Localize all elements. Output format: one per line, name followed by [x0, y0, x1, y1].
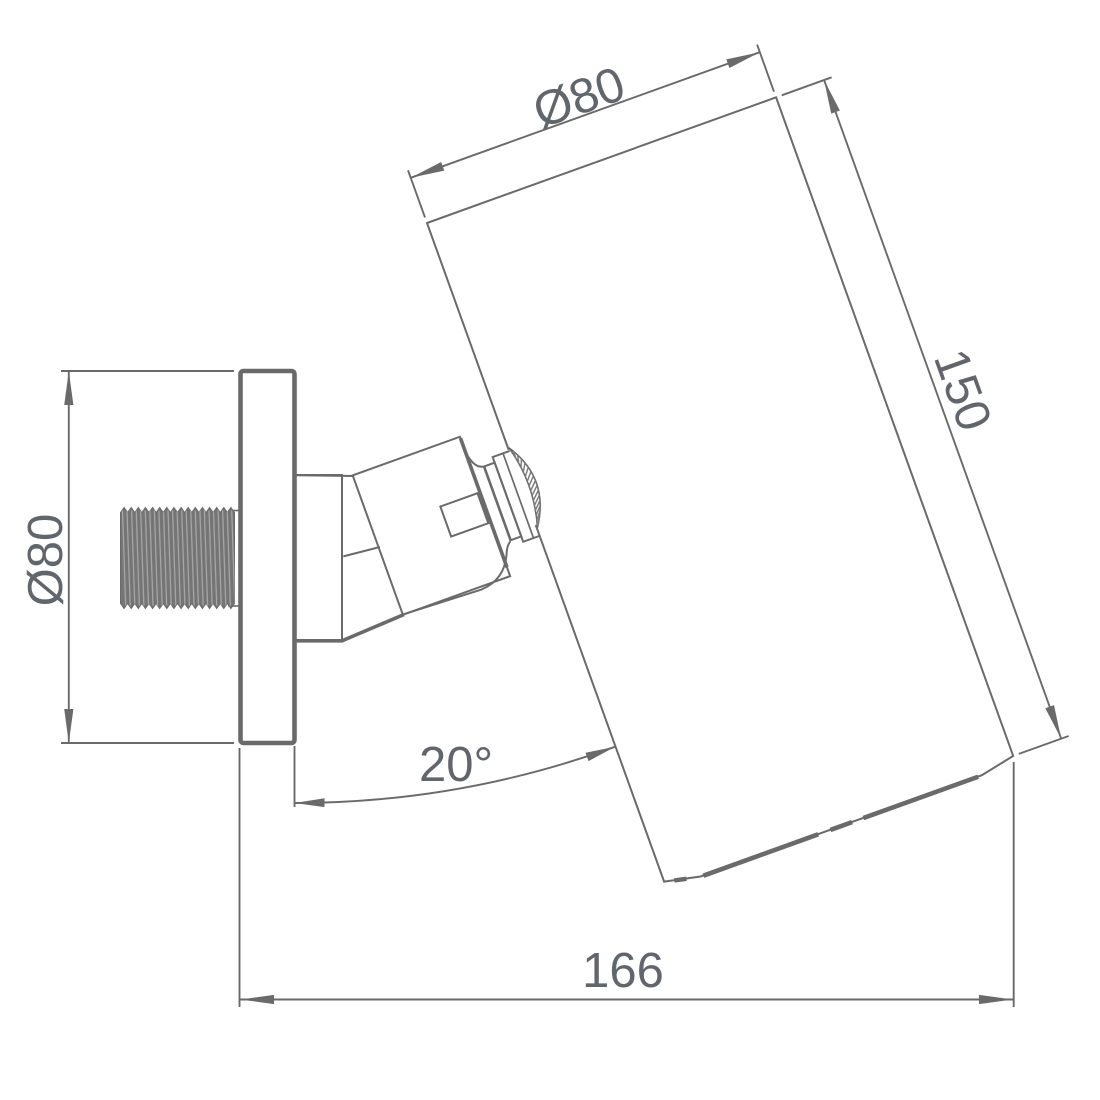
svg-text:20°: 20°	[419, 738, 493, 792]
svg-text:166: 166	[582, 944, 664, 998]
svg-text:Ø80: Ø80	[19, 514, 73, 607]
